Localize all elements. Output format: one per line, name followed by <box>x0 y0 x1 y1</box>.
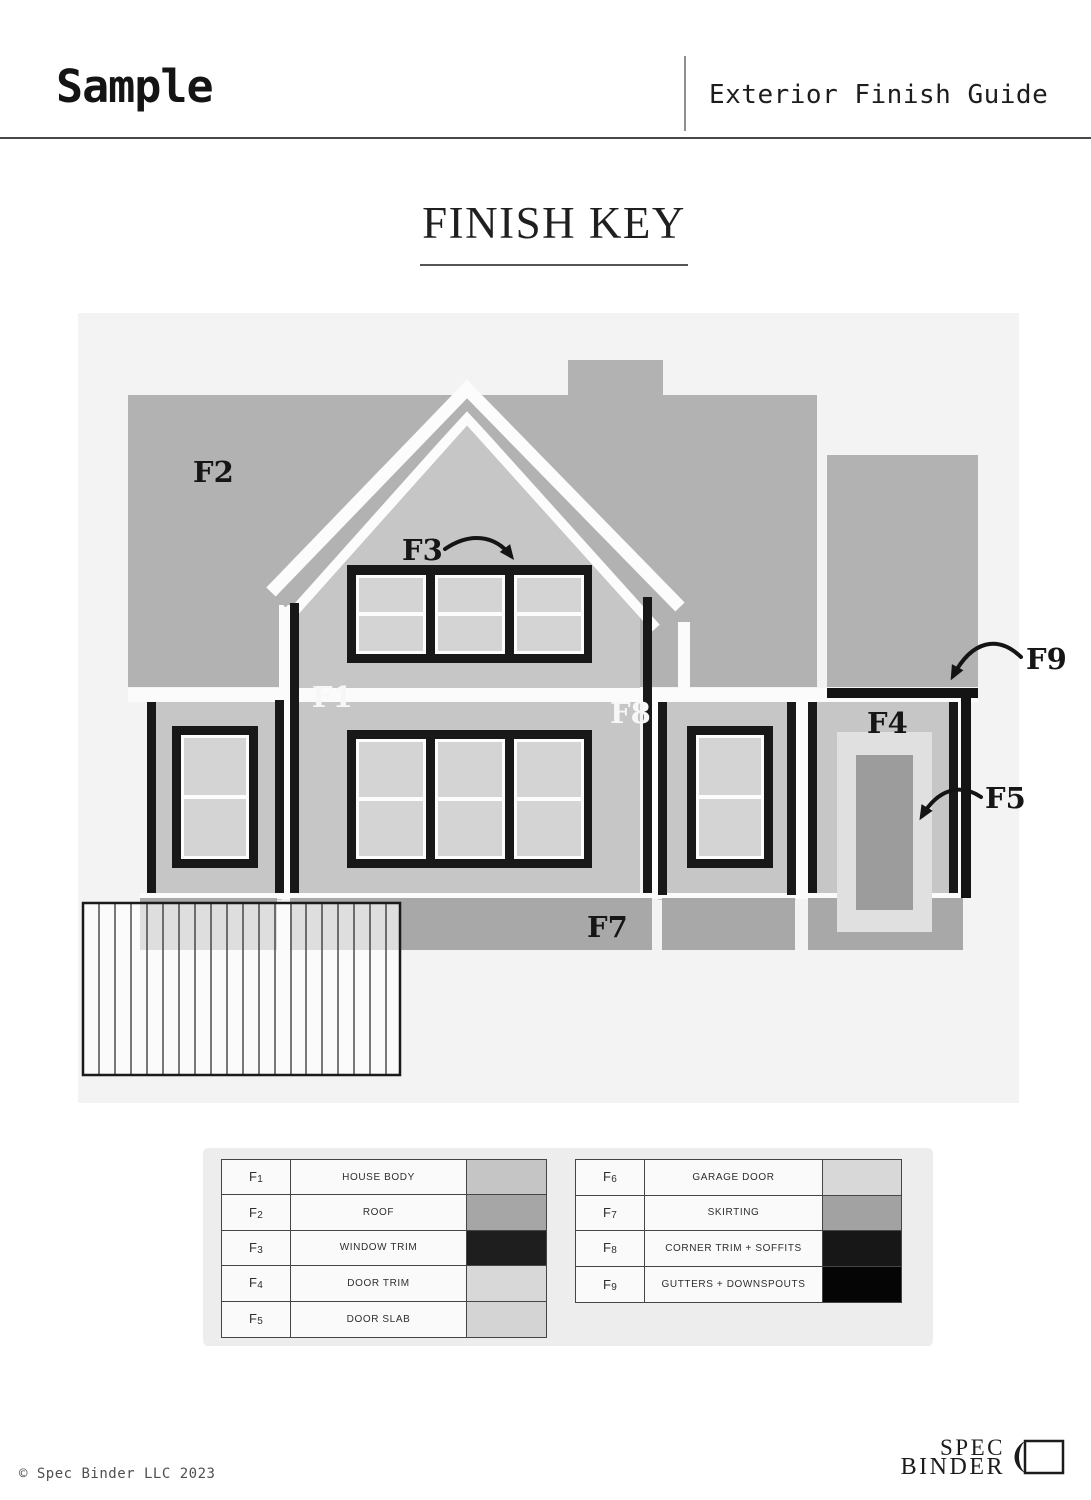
soffit-gap-roofline <box>128 688 817 702</box>
finish-swatch <box>467 1302 546 1337</box>
finish-label: SKIRTING <box>645 1196 823 1232</box>
window-sash <box>359 612 423 616</box>
corner-trim <box>808 702 817 893</box>
finish-swatch <box>467 1195 546 1230</box>
deck <box>83 903 400 1075</box>
finish-code: F6 <box>576 1160 645 1196</box>
finish-label: GARAGE DOOR <box>645 1160 823 1196</box>
window-sash <box>517 797 581 801</box>
upper-window-band <box>347 565 592 663</box>
window-sash <box>184 795 246 799</box>
roof-gap-right <box>678 622 690 688</box>
window-sash <box>699 795 761 799</box>
finish-swatch <box>823 1196 901 1232</box>
gap-vertical-2 <box>651 698 659 898</box>
copyright-text: © Spec Binder LLC 2023 <box>19 1466 215 1482</box>
finish-swatch <box>823 1231 901 1267</box>
finish-code: F9 <box>576 1267 645 1303</box>
page-subtitle: Exterior Finish Guide <box>709 80 1048 111</box>
finish-label: GUTTERS + DOWNSPOUTS <box>645 1267 823 1303</box>
window-sash <box>359 797 423 801</box>
chimney <box>568 360 663 396</box>
corner-trim <box>949 702 958 893</box>
label-f4: F4 <box>867 706 908 740</box>
corner-trim <box>787 702 796 895</box>
logo-wordmark: SPEC BINDER <box>901 1439 1005 1477</box>
right-wing-window <box>687 726 773 868</box>
header-rule <box>0 137 1091 139</box>
finish-label: HOUSE BODY <box>291 1160 467 1195</box>
finish-table-right: F6 GARAGE DOOR F7 SKIRTING F8 CORNER TRI… <box>575 1159 902 1303</box>
finish-code: F8 <box>576 1231 645 1267</box>
finish-label: CORNER TRIM + SOFFITS <box>645 1231 823 1267</box>
finish-code: F2 <box>222 1195 291 1230</box>
finish-swatch <box>823 1267 901 1303</box>
corner-trim <box>275 700 284 893</box>
window-sash <box>438 612 502 616</box>
left-wing-window <box>172 726 258 868</box>
finish-label: DOOR TRIM <box>291 1266 467 1301</box>
finish-code: F5 <box>222 1302 291 1337</box>
garage-roof <box>827 455 978 687</box>
finish-code: F3 <box>222 1231 291 1266</box>
finish-code: F7 <box>576 1196 645 1232</box>
corner-trim <box>147 702 156 893</box>
corner-trim <box>658 702 667 895</box>
house-elevation-diagram: F2 F3 F1 F8 F4 F9 F5 F7 <box>0 310 1091 1103</box>
skirting-segment <box>662 898 795 950</box>
page-title: Sample <box>56 62 213 112</box>
label-f9: F9 <box>1026 642 1067 676</box>
binder-icon <box>1008 1438 1065 1476</box>
label-f8: F8 <box>610 696 651 730</box>
spec-binder-logo: SPEC BINDER <box>901 1438 1065 1477</box>
finish-swatch <box>823 1160 901 1196</box>
window-sash <box>438 797 502 801</box>
logo-word-binder: BINDER <box>901 1458 1005 1477</box>
finish-code: F4 <box>222 1266 291 1301</box>
label-f1: F1 <box>312 680 353 714</box>
label-f5: F5 <box>985 781 1026 815</box>
section-title-underline <box>420 264 688 266</box>
window-sash <box>517 612 581 616</box>
label-f7: F7 <box>587 910 628 944</box>
section-title: FINISH KEY <box>0 197 1091 249</box>
finish-label: WINDOW TRIM <box>291 1231 467 1266</box>
corner-trim <box>290 603 299 893</box>
roof-gap-left <box>279 605 290 689</box>
door-slab <box>856 755 913 910</box>
finish-swatch <box>467 1266 546 1301</box>
label-f2: F2 <box>193 455 234 489</box>
gap-vertical-3 <box>795 702 809 898</box>
label-f3: F3 <box>402 533 443 567</box>
finish-label: ROOF <box>291 1195 467 1230</box>
finish-swatch <box>467 1231 546 1266</box>
finish-code: F1 <box>222 1160 291 1195</box>
finish-swatch <box>467 1160 546 1195</box>
header-divider <box>684 56 686 131</box>
finish-label: DOOR SLAB <box>291 1302 467 1337</box>
finish-table-left: F1 HOUSE BODY F2 ROOF F3 WINDOW TRIM F4 … <box>221 1159 547 1338</box>
lower-window-band <box>347 730 592 868</box>
gutter <box>827 688 978 698</box>
corner-trim <box>643 597 652 893</box>
gap-vertical-1 <box>283 700 291 896</box>
